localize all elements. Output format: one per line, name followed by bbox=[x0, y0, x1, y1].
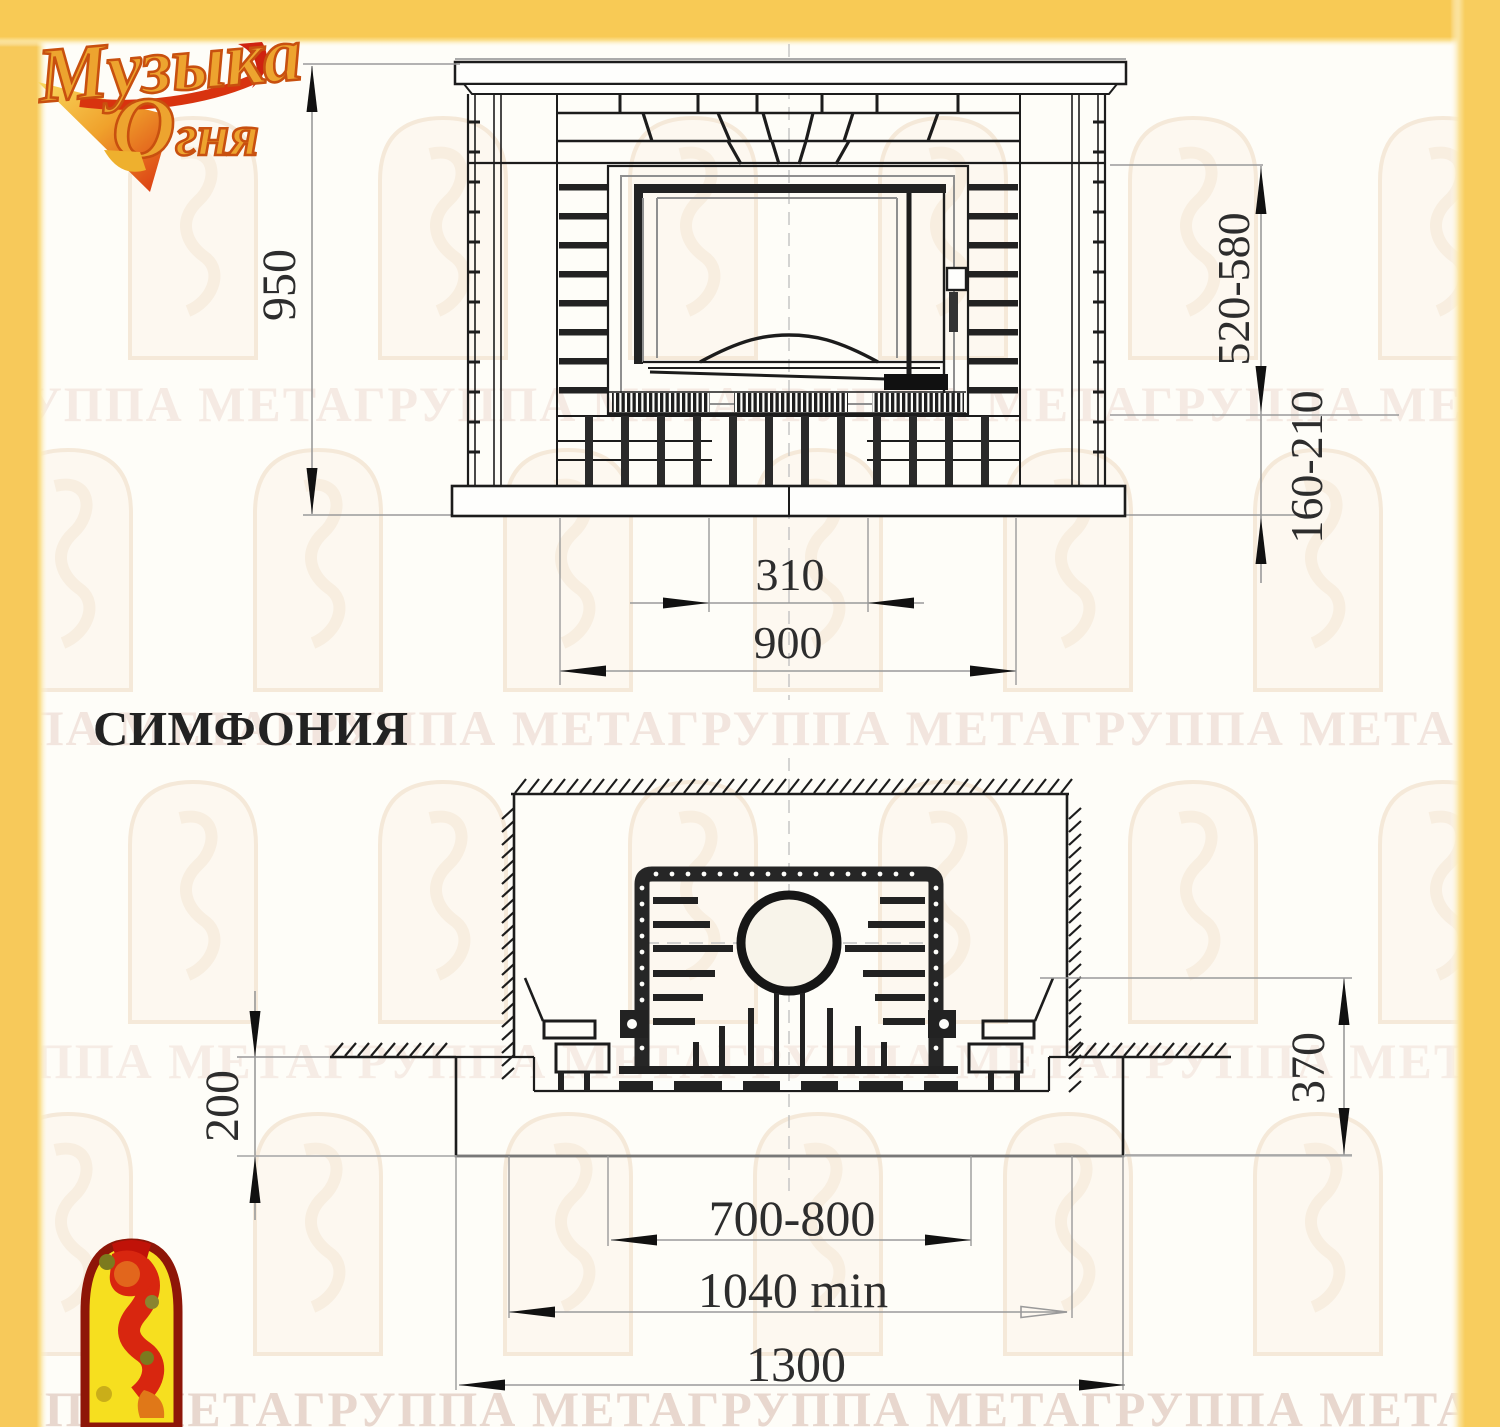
svg-text:1300: 1300 bbox=[746, 1336, 846, 1392]
svg-text:310: 310 bbox=[756, 549, 825, 600]
svg-text:1040 min: 1040 min bbox=[698, 1262, 888, 1318]
svg-text:700-800: 700-800 bbox=[709, 1190, 876, 1246]
svg-text:370: 370 bbox=[1282, 1032, 1335, 1104]
svg-text:950: 950 bbox=[253, 249, 306, 321]
svg-text:200: 200 bbox=[196, 1070, 249, 1142]
svg-text:ГРУППА МЕТАГРУППА МЕТАГРУППА М: ГРУППА МЕТАГРУППА МЕТАГРУППА МЕТАГРУППА … bbox=[0, 1381, 1475, 1427]
svg-text:СИМФОНИЯ: СИМФОНИЯ bbox=[93, 701, 409, 756]
svg-text:900: 900 bbox=[754, 617, 823, 668]
svg-text:520-580: 520-580 bbox=[1208, 212, 1259, 365]
svg-text:160-210: 160-210 bbox=[1281, 390, 1332, 543]
